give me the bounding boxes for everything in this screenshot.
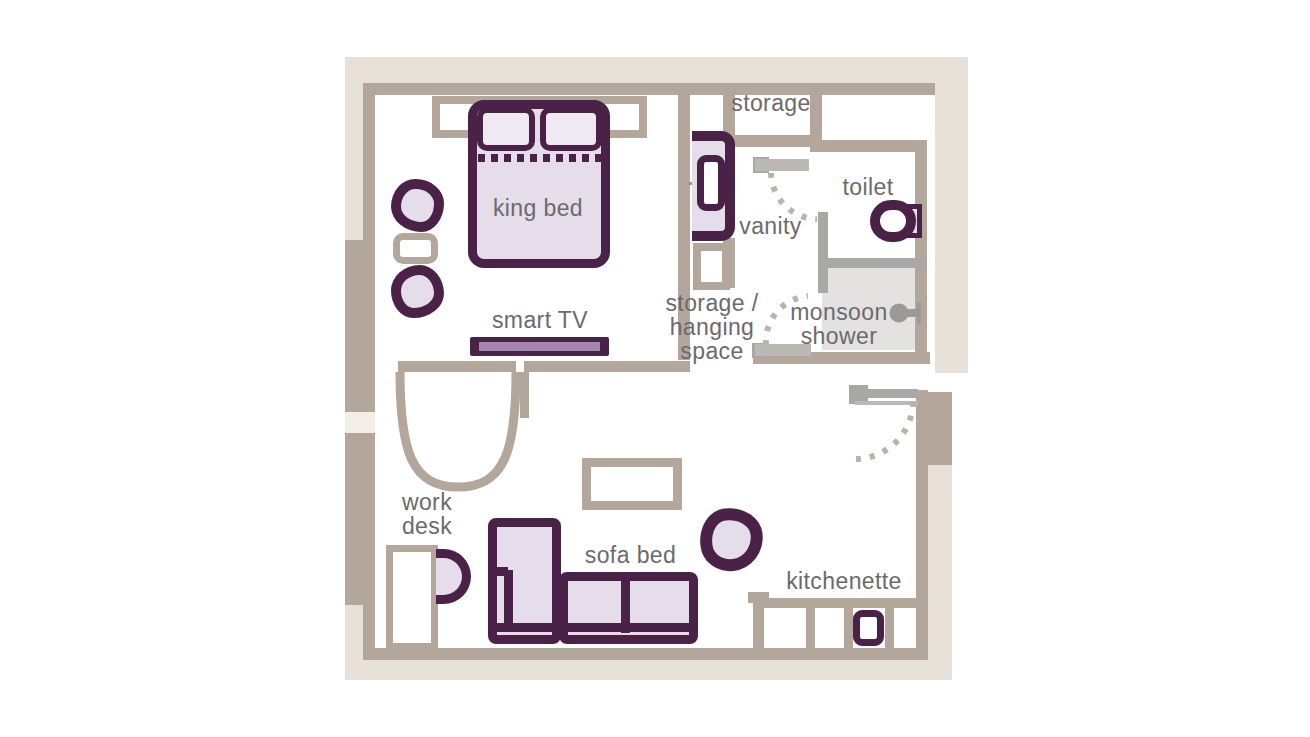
label-work-desk: work desk — [393, 490, 461, 538]
kitchen-sink — [853, 610, 884, 646]
sofa-cushion-divider — [621, 578, 630, 633]
smart-tv-screen — [479, 342, 600, 351]
label-storage-hanging: storage / hanging space — [652, 291, 772, 363]
label-king-bed: king bed — [478, 196, 598, 220]
stool-top — [391, 179, 444, 232]
bed-dotted-line — [478, 154, 605, 162]
label-kitchenette: kitchenette — [778, 569, 910, 593]
curved-pod-wall — [400, 372, 516, 487]
label-storage-hanging-line2: hanging — [652, 315, 772, 339]
sofa-chaise-step — [488, 567, 508, 576]
label-vanity: vanity — [733, 214, 808, 238]
vanity-sink — [697, 155, 725, 211]
floor-plan: king bed smart TV storage vanity toilet … — [0, 0, 1310, 737]
label-storage-hanging-line3: space — [652, 339, 772, 363]
label-smart-tv: smart TV — [478, 308, 602, 332]
label-monsoon-shower: monsoon shower — [780, 300, 898, 348]
label-sofa-bed: sofa bed — [578, 543, 683, 567]
pillow-left — [477, 107, 535, 151]
sofa-chaise-inner-line — [504, 570, 513, 632]
label-monsoon-shower-line2: shower — [780, 324, 898, 348]
label-monsoon-shower-line1: monsoon — [780, 300, 898, 324]
label-storage-hanging-line1: storage / — [652, 291, 772, 315]
sofa-front-line — [496, 623, 690, 632]
entry-door-swing-arc — [855, 402, 913, 459]
toilet-bowl — [870, 200, 916, 242]
label-toilet: toilet — [818, 175, 918, 199]
pillow-right — [540, 107, 602, 151]
label-storage: storage — [723, 91, 819, 115]
label-work-desk-line2: desk — [393, 514, 461, 538]
label-work-desk-line1: work — [393, 490, 461, 514]
